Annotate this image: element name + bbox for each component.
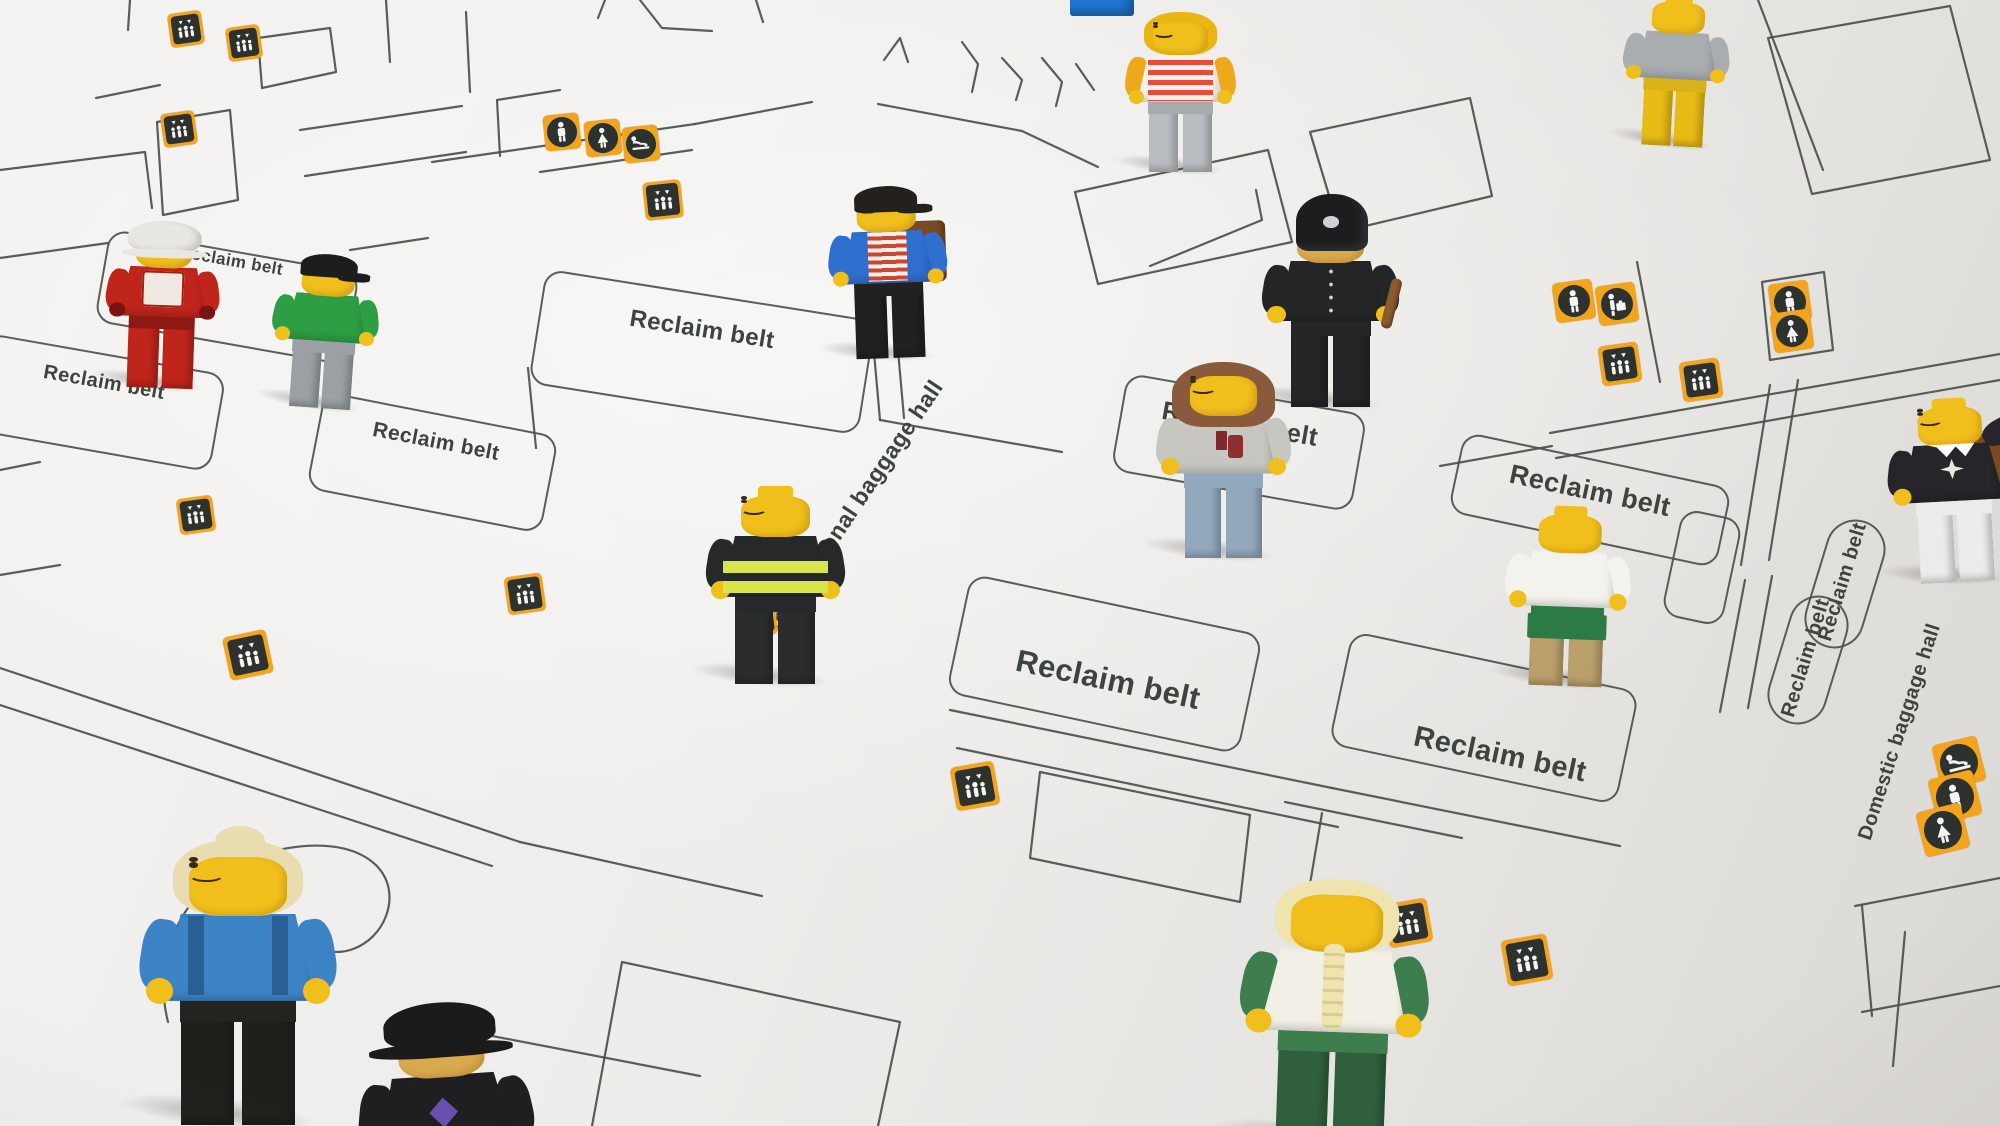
uniform-buttons [1326, 265, 1336, 318]
minifig-sheriff-waving [1889, 395, 2000, 585]
torso [1518, 549, 1619, 608]
head-stud [758, 486, 794, 500]
floorplan-line [96, 85, 160, 98]
meeting-point-badge [167, 10, 205, 48]
minifig-policeman [1268, 212, 1393, 407]
floorplan-line [0, 243, 108, 258]
sweater-crest [1228, 435, 1243, 458]
minifig-tank-top-woman [1130, 14, 1231, 172]
meeting-point-icon [179, 498, 212, 531]
right-leg [1333, 1050, 1387, 1126]
minifig-brown-hair-woman-sweater [1162, 366, 1285, 558]
right-leg [162, 327, 195, 389]
floorplan-line [1030, 772, 1250, 902]
minifig-boy-green-cap [271, 253, 378, 411]
left-leg [735, 610, 772, 684]
left-hand [1893, 489, 1912, 506]
right-leg [321, 351, 354, 410]
left-leg [1641, 87, 1673, 145]
floorplan-line [0, 668, 520, 842]
head [1917, 406, 1983, 448]
floorplan-line [1893, 932, 1905, 1066]
minifig-pirate-blue-jacket [831, 186, 946, 360]
torso [282, 291, 368, 344]
meeting-point-badge [504, 573, 547, 616]
hips [1184, 473, 1263, 488]
meeting-point-badge [1500, 933, 1553, 986]
head-stud [1932, 397, 1966, 412]
right-hand [359, 332, 374, 347]
minifig-bowler-hat-man [358, 1007, 535, 1126]
toilets-women-icon [587, 122, 619, 154]
mouth [1153, 28, 1174, 38]
torso-print [141, 271, 184, 308]
floorplan-line [1310, 813, 1322, 884]
mouth [1917, 415, 1942, 427]
floorplan-line [0, 152, 152, 208]
left-luggage-icon [1598, 285, 1635, 322]
left-leg [1185, 486, 1221, 558]
toilets-women-icon [1773, 312, 1810, 349]
toilets-men-icon [546, 116, 578, 148]
minifig-white-torso-green-wrap-figure [1507, 504, 1628, 688]
mouth [1190, 383, 1215, 394]
floorplan-line [1076, 64, 1094, 90]
hips [1148, 102, 1213, 115]
meeting-point-badge [1678, 357, 1723, 402]
mouth [741, 503, 767, 514]
meeting-point-icon [1601, 345, 1638, 382]
overall-straps [188, 916, 289, 995]
floorplan-line [0, 462, 40, 470]
floorplan-line [258, 28, 336, 88]
floorplan-line [350, 238, 428, 250]
left-hand [1509, 590, 1527, 607]
right-hand [927, 268, 944, 284]
meeting-point-icon [1505, 938, 1549, 982]
meeting-point-icon [228, 27, 259, 58]
hips [735, 596, 816, 612]
floorplan-line [1862, 986, 2000, 1012]
floorplan-line [1768, 6, 1990, 194]
floorplan-line [695, 102, 812, 124]
meeting-point-badge [950, 761, 1001, 812]
right-leg [1183, 113, 1213, 172]
right-leg [1957, 511, 1995, 582]
hips [180, 1000, 295, 1023]
striped-top [1148, 55, 1213, 101]
hips [1291, 320, 1371, 336]
toilets-men-badge [542, 112, 582, 152]
right-leg [1333, 334, 1370, 407]
left-hand [109, 302, 125, 317]
right-leg [891, 293, 925, 358]
mouth [189, 868, 224, 883]
toilets-men-badge [1551, 278, 1596, 323]
floorplan-line [386, 0, 390, 62]
right-eye [189, 862, 198, 867]
meeting-point-badge [1597, 341, 1642, 386]
meeting-point-badge [642, 179, 684, 221]
right-leg [1674, 89, 1706, 147]
right-eye [1190, 379, 1196, 383]
meeting-point-icon [646, 183, 680, 217]
floorplan-line [1042, 58, 1062, 106]
left-leg [181, 1019, 234, 1125]
floorplan-line [592, 962, 900, 1126]
meeting-point-badge [225, 24, 263, 62]
right-leg [778, 610, 815, 684]
head [189, 857, 286, 916]
left-hand [146, 978, 173, 1003]
hair-braid [1321, 943, 1345, 1029]
floorplan-line [1758, 0, 1823, 170]
right-hand [199, 305, 215, 320]
floorplan-line [1285, 802, 1462, 838]
photo-lego-airport-baggage-map: Reclaim beltReclaim beltReclaim beltRecl… [0, 0, 2000, 1126]
floorplan-line [466, 12, 470, 92]
right-eye [1153, 25, 1158, 28]
left-leg [1291, 334, 1328, 407]
head [1190, 376, 1256, 416]
meeting-point-icon [954, 765, 996, 807]
right-hand [303, 978, 330, 1003]
head [1538, 514, 1601, 554]
baby-change-icon [625, 128, 657, 160]
head [1153, 22, 1208, 55]
left-luggage-badge [1594, 281, 1639, 326]
torso [1634, 30, 1720, 81]
meeting-point-badge [176, 495, 217, 536]
left-leg [855, 294, 889, 359]
minifig-gray-armor-figure [1623, 0, 1728, 149]
left-leg [1917, 513, 1955, 584]
left-leg [127, 326, 160, 388]
toilets-women-badge [1769, 308, 1814, 353]
hi-vis-stripes [723, 561, 827, 593]
floorplan-line [957, 748, 1338, 827]
blue-brick [1070, 0, 1134, 16]
striped-shirt [867, 232, 908, 283]
toilets-women-icon [1920, 807, 1966, 853]
head [1651, 0, 1705, 35]
floorplan-line [756, 0, 763, 22]
floorplan-line [1855, 878, 2000, 906]
floorplan-line [1150, 190, 1262, 266]
minifig-blonde-bun-woman-blue [148, 843, 328, 1125]
head [741, 496, 810, 538]
meeting-point-icon [507, 576, 542, 611]
floorplan-line [962, 42, 978, 92]
right-leg [1226, 486, 1262, 558]
green-wrap [1527, 613, 1606, 641]
floorplan-line [884, 38, 908, 62]
hair-bun [215, 826, 265, 857]
right-hand [1395, 1013, 1422, 1038]
right-hand [1217, 90, 1232, 104]
floorplan-line [128, 0, 130, 30]
meeting-point-badge [222, 629, 274, 681]
meeting-point-icon [1682, 361, 1719, 398]
right-hand [1268, 458, 1286, 475]
meeting-point-icon [170, 13, 201, 44]
floorplan-line [1769, 380, 1798, 560]
left-leg [1149, 113, 1179, 172]
meeting-point-badge [160, 110, 198, 148]
right-leg [242, 1019, 295, 1125]
right-hand [1710, 69, 1725, 83]
cap-brim [897, 203, 933, 214]
floorplan-line [1637, 262, 1660, 382]
toilets-men-icon [1555, 282, 1592, 319]
meeting-point-icon [227, 634, 270, 677]
left-hand [1129, 90, 1144, 104]
baby-change-badge [621, 124, 661, 164]
left-hand [1267, 306, 1286, 324]
left-hand [275, 326, 290, 341]
minifig-braid-girl-green-dress [1243, 879, 1424, 1126]
floorplan-line [305, 152, 466, 176]
floorplan-line [520, 842, 762, 896]
minifig-construction-worker-red [107, 224, 217, 390]
toilets-women-badge [583, 118, 623, 158]
floorplan-line [300, 106, 462, 130]
meeting-point-icon [163, 113, 194, 144]
right-hand [1609, 594, 1627, 611]
floorplan-line [0, 565, 60, 575]
floorplan-line [640, 0, 712, 31]
floorplan-line [878, 104, 1098, 167]
head-stud [1555, 506, 1588, 520]
floorplan-line [1741, 385, 1770, 565]
left-leg [289, 349, 322, 408]
floorplan-line [1862, 906, 1872, 1016]
minifig-fireman [712, 486, 839, 684]
helmet-badge [1323, 216, 1339, 228]
left-leg [1275, 1048, 1329, 1126]
floorplan-line [1002, 58, 1022, 100]
left-hand [1626, 64, 1641, 78]
floorplan-line [598, 0, 605, 18]
